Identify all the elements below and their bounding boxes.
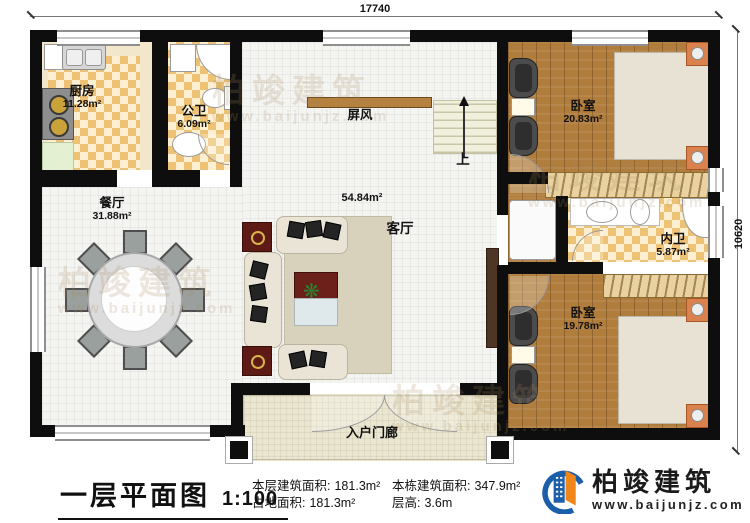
sofa-cushion xyxy=(249,283,268,302)
wall-left xyxy=(30,30,42,437)
wall-below-kitchen-b xyxy=(153,170,200,187)
dimension-tick xyxy=(732,25,740,33)
armchair xyxy=(509,58,538,98)
wardrobe-top xyxy=(545,172,710,198)
armchair xyxy=(509,364,538,404)
sofa-cushion xyxy=(305,220,323,238)
sofa-cushion xyxy=(323,222,342,241)
stairs-arrow-head xyxy=(459,96,469,106)
sofa-cushion xyxy=(289,351,308,370)
stairs-up-label: 上 xyxy=(450,152,476,168)
dining-chair xyxy=(65,288,89,312)
cabinet-handle xyxy=(251,231,265,245)
side-table xyxy=(511,346,535,364)
dining-chair xyxy=(123,230,147,254)
room-label-porch: 入户门廊 xyxy=(328,426,416,441)
wall-central-top xyxy=(497,30,508,215)
room-label-ensuite: 内卫 5.87m² xyxy=(640,232,706,258)
bed-top xyxy=(614,52,712,160)
screen-partition xyxy=(307,97,432,108)
floor-plan-page: 17740 10620 xyxy=(0,0,750,523)
wall-bath-living xyxy=(230,30,242,187)
brand-logo-block: 柏竣建筑 www.baijunjz.com xyxy=(538,462,744,519)
hall-cabinet xyxy=(509,200,556,260)
sofa-cushion xyxy=(250,305,268,323)
brand-name: 柏竣建筑 xyxy=(592,469,744,495)
side-cabinet xyxy=(242,222,272,252)
window-dining-left xyxy=(30,267,46,352)
porch-name: 入户门廊 xyxy=(328,426,416,441)
screen-name: 屏风 xyxy=(326,108,394,122)
living-name: 客厅 xyxy=(372,221,428,237)
brand-logo-icon xyxy=(538,462,584,519)
room-label-living: 客厅 xyxy=(372,221,428,237)
window-ensuite-right xyxy=(708,206,724,258)
room-label-bedroom-top: 卧室 20.83m² xyxy=(548,99,618,125)
armchair xyxy=(509,116,538,156)
room-label-kitchen: 厨房 11.28m² xyxy=(52,84,112,110)
brand-url: www.baijunjz.com xyxy=(592,497,744,512)
dining-name: 餐厅 xyxy=(80,196,144,210)
ensuite-area: 5.87m² xyxy=(640,246,706,258)
porch-column xyxy=(486,436,514,464)
plan-title: 一层平面图 xyxy=(60,474,210,513)
ensuite-toilet xyxy=(630,199,650,225)
bedroom-bottom-area: 19.78m² xyxy=(548,320,618,332)
wall-bedroom-top-stub xyxy=(508,172,548,184)
kitchen-counter xyxy=(42,142,74,172)
room-label-public-bath: 公卫 6.09m² xyxy=(166,104,222,130)
dimension-tick xyxy=(715,11,723,19)
sink-bowl xyxy=(85,49,102,66)
nightstand xyxy=(686,42,710,66)
window-dining-bottom xyxy=(55,425,210,441)
porch-column-core xyxy=(230,441,248,459)
nightstand xyxy=(686,404,710,428)
stairs-up-text: 上 xyxy=(450,152,476,168)
room-label-living-area: 54.84m² xyxy=(326,192,398,205)
window-kitchen xyxy=(57,30,140,46)
stat-label: 层高: xyxy=(392,496,420,510)
room-label-dining: 餐厅 31.88m² xyxy=(80,196,144,222)
stat-value: 347.9m² xyxy=(474,479,520,493)
public-bath-area: 6.09m² xyxy=(166,118,222,130)
dining-area: 31.88m² xyxy=(80,210,144,222)
window-living-top xyxy=(323,30,410,46)
plant: ❋ xyxy=(303,282,320,302)
sofa-cushion xyxy=(309,350,327,368)
stat-value: 181.3m² xyxy=(309,496,355,510)
burner xyxy=(49,117,69,137)
stat-label: 占地面积: xyxy=(252,496,305,510)
wall-below-kitchen-a xyxy=(30,170,117,187)
stat-value: 181.3m² xyxy=(334,479,380,493)
kitchen-name: 厨房 xyxy=(52,84,112,98)
stat-footprint-area: 占地面积:181.3m² xyxy=(252,495,380,512)
room-label-screen: 屏风 xyxy=(326,108,394,122)
public-bath-name: 公卫 xyxy=(166,104,222,118)
bedroom-bottom-name: 卧室 xyxy=(548,306,618,320)
bedroom-top-name: 卧室 xyxy=(548,99,618,113)
sofa-cushion xyxy=(287,221,306,240)
washing-machine xyxy=(170,44,196,72)
wall-living-bottom-left xyxy=(237,383,310,395)
porch-column-core xyxy=(491,441,509,459)
wall-ensuite-left xyxy=(556,196,568,262)
kitchen-sink xyxy=(62,44,106,70)
ensuite-name: 内卫 xyxy=(640,232,706,246)
ensuite-sink xyxy=(586,201,618,223)
dimension-tick xyxy=(27,11,35,19)
stairs xyxy=(433,100,497,154)
dimension-tick xyxy=(732,447,740,455)
stats-column-1: 本层建筑面积:181.3m² 占地面积:181.3m² xyxy=(252,478,380,512)
wall-central-bottom xyxy=(497,265,508,428)
window-bedroom-top xyxy=(572,30,648,46)
stat-label: 本层建筑面积: xyxy=(252,479,330,493)
dining-chair xyxy=(181,288,205,312)
top-dimension-line xyxy=(30,16,720,17)
nightstand xyxy=(686,298,710,322)
stats-column-2: 本栋建筑面积:347.9m² 层高:3.6m xyxy=(392,478,520,512)
nightstand xyxy=(686,146,710,170)
dining-chair xyxy=(123,346,147,370)
wardrobe-bottom xyxy=(603,274,710,298)
kitchen-area: 11.28m² xyxy=(52,98,112,110)
stairs-arrow-line xyxy=(463,104,465,158)
side-table xyxy=(511,98,535,116)
sink-bowl xyxy=(66,49,83,66)
dining-table-top xyxy=(101,266,167,332)
porch-column xyxy=(225,436,253,464)
right-dimension-label: 10620 xyxy=(733,206,745,262)
room-label-bedroom-bottom: 卧室 19.78m² xyxy=(548,306,618,332)
window-bedroom-top-right xyxy=(708,168,724,192)
stat-storey-height: 层高:3.6m xyxy=(392,495,520,512)
stat-label: 本栋建筑面积: xyxy=(392,479,470,493)
stat-building-area: 本栋建筑面积:347.9m² xyxy=(392,478,520,495)
living-area: 54.84m² xyxy=(326,192,398,205)
wall-bedroom-bottom-top xyxy=(508,262,603,274)
stat-floor-area: 本层建筑面积:181.3m² xyxy=(252,478,380,495)
wall-bedroom-bottom-bottom xyxy=(497,428,720,440)
bedroom-top-area: 20.83m² xyxy=(548,113,618,125)
side-cabinet xyxy=(242,346,272,376)
brand-text-block: 柏竣建筑 www.baijunjz.com xyxy=(592,469,744,512)
stat-value: 3.6m xyxy=(424,496,452,510)
top-dimension-label: 17740 xyxy=(345,3,405,15)
cabinet-handle xyxy=(251,355,265,369)
